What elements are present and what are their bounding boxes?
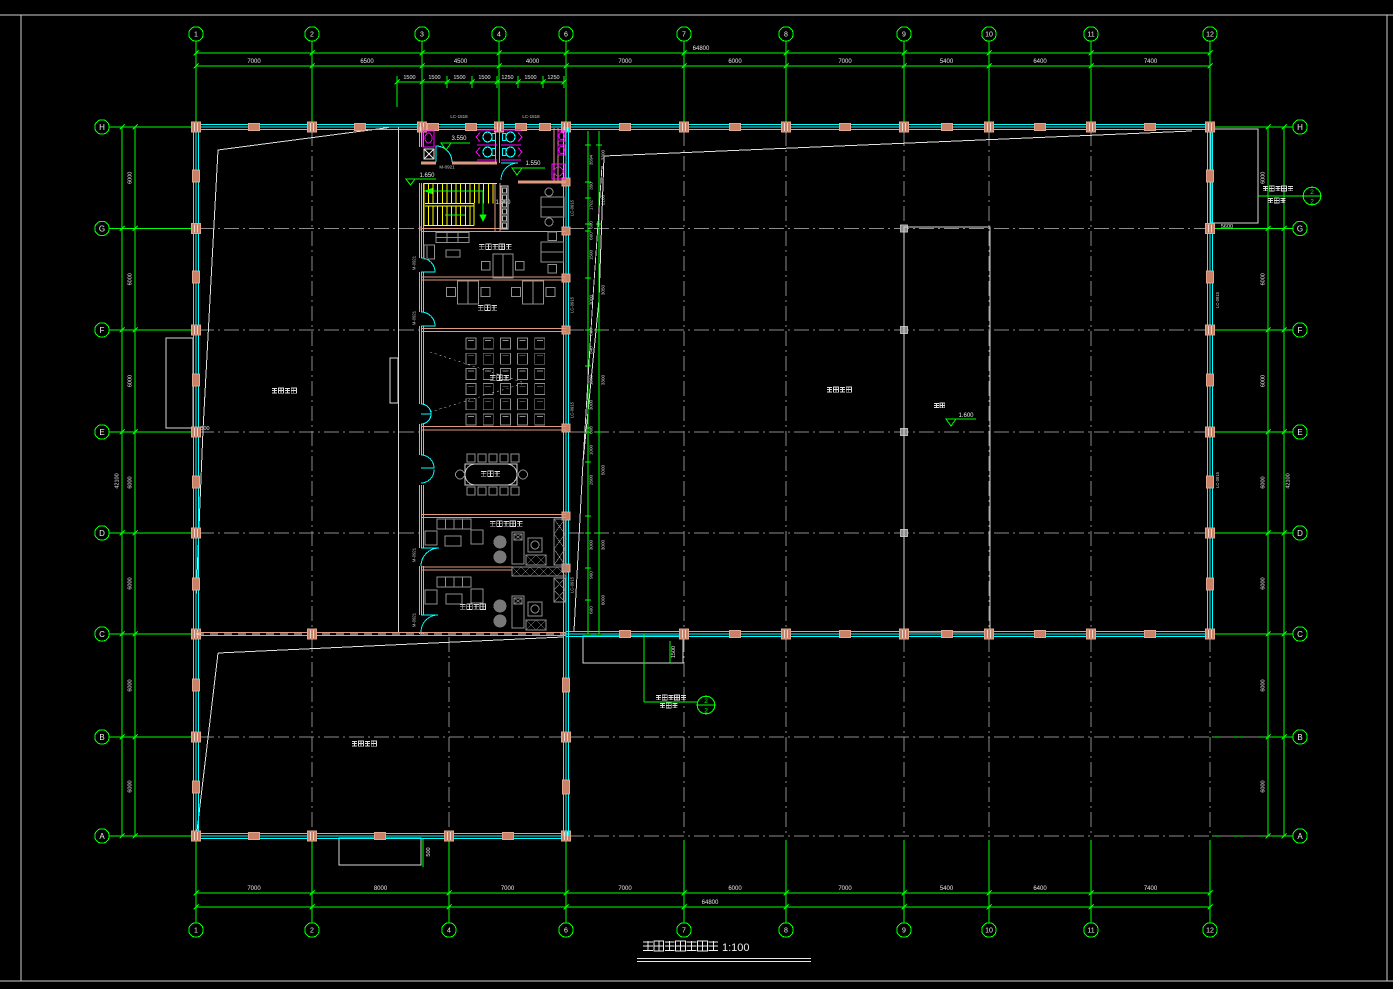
svg-text:7000: 7000 [247,59,261,65]
svg-text:6000: 6000 [128,577,134,589]
svg-text:500: 500 [200,426,209,432]
svg-text:4000: 4000 [526,59,540,65]
svg-text:M-0921: M-0921 [412,547,417,562]
svg-text:7400: 7400 [1144,59,1158,65]
svg-text:7000: 7000 [618,59,632,65]
svg-text:840: 840 [589,346,594,354]
svg-text:E: E [99,428,104,437]
svg-text:3000: 3000 [589,294,594,305]
svg-text:LC-1518: LC-1518 [450,114,468,119]
svg-text:10: 10 [985,928,993,935]
svg-text:H: H [1297,123,1303,132]
svg-text:6000: 6000 [1261,273,1267,285]
svg-text:7: 7 [682,928,686,935]
svg-text:6000: 6000 [1261,577,1267,589]
svg-text:1500: 1500 [428,75,440,81]
svg-text:500: 500 [426,847,432,856]
svg-text:6000: 6000 [128,375,134,387]
svg-text:4500: 4500 [454,59,468,65]
svg-text:A: A [1297,832,1303,841]
svg-text:42100: 42100 [1286,473,1292,488]
svg-text:M-0921: M-0921 [412,255,417,270]
svg-text:6400: 6400 [1033,886,1047,892]
svg-text:2: 2 [310,32,314,39]
svg-text:7000: 7000 [618,886,632,892]
svg-text:LC-0915: LC-0915 [570,296,575,313]
svg-text:LC-0915: LC-0915 [570,199,575,216]
svg-text:3300: 3300 [601,374,606,385]
svg-text:1702: 1702 [589,199,594,210]
svg-text:B: B [1297,733,1302,742]
svg-text:5000: 5000 [601,464,606,475]
svg-text:2600: 2600 [589,474,594,485]
svg-text:1500: 1500 [478,75,490,81]
svg-text:900: 900 [589,571,594,579]
svg-text:3000: 3000 [589,539,594,550]
svg-text:1.800: 1.800 [495,200,511,206]
svg-text:3.550: 3.550 [451,136,467,142]
svg-text:M-0921: M-0921 [412,612,417,627]
svg-text:1500: 1500 [589,249,594,260]
svg-text:7000: 7000 [247,886,261,892]
svg-text:600: 600 [589,426,594,434]
svg-text:6000: 6000 [128,273,134,285]
svg-text:1500: 1500 [589,374,594,385]
svg-text:6400: 6400 [1033,59,1047,65]
svg-text:1250: 1250 [547,75,559,81]
svg-text:7000: 7000 [501,886,515,892]
svg-text:64800: 64800 [693,46,710,52]
svg-text:600: 600 [589,328,594,336]
svg-text:2: 2 [310,928,314,935]
svg-text:6000: 6000 [728,886,742,892]
svg-text:600: 600 [589,606,594,614]
svg-text:B: B [99,733,104,742]
svg-text:10: 10 [985,32,993,39]
svg-text:F: F [100,326,105,335]
svg-text:8000: 8000 [374,886,388,892]
svg-text:1250: 1250 [501,75,513,81]
svg-text:A: A [99,832,105,841]
svg-text:2: 2 [1310,189,1314,196]
svg-text:D: D [99,529,105,538]
svg-text:7000: 7000 [838,59,852,65]
svg-text:3300: 3300 [601,149,606,160]
svg-text:1: 1 [194,928,198,935]
svg-text:LC-0915: LC-0915 [570,401,575,418]
svg-text:6000: 6000 [1261,172,1267,184]
svg-text:H: H [99,123,105,132]
svg-text:7: 7 [682,32,686,39]
svg-text:3000: 3000 [589,399,594,410]
svg-text:1.650: 1.650 [419,173,435,179]
svg-text:350: 350 [589,182,594,190]
svg-text:6000: 6000 [128,476,134,488]
svg-text:11: 11 [1087,928,1094,935]
svg-text:6000: 6000 [1261,476,1267,488]
svg-text:6000: 6000 [128,679,134,691]
svg-text:1000: 1000 [589,444,594,455]
svg-text:4: 4 [447,928,451,935]
svg-text:C: C [99,630,105,639]
svg-text:11: 11 [1087,32,1094,39]
svg-text:7400: 7400 [1144,886,1158,892]
svg-text:9: 9 [902,32,906,39]
svg-text:64800: 64800 [702,900,719,906]
svg-text:F: F [1298,326,1303,335]
svg-text:2: 2 [1310,199,1314,206]
svg-text:3000: 3000 [601,539,606,550]
svg-text:42100: 42100 [115,473,121,488]
svg-text:6000: 6000 [128,172,134,184]
svg-text:3050: 3050 [601,284,606,295]
svg-text:M-0921: M-0921 [439,165,455,170]
svg-text:M-0921: M-0921 [412,310,417,325]
svg-text:LC-0915: LC-0915 [1215,291,1220,308]
svg-text:6: 6 [564,32,568,39]
svg-text:3: 3 [420,32,424,39]
svg-text:1500: 1500 [524,75,536,81]
svg-text:C: C [1297,630,1303,639]
svg-text:600: 600 [589,221,594,229]
svg-text:2100: 2100 [601,194,606,205]
svg-text:600: 600 [589,232,594,240]
svg-text:2: 2 [704,698,708,705]
svg-text:LC-0915: LC-0915 [1215,471,1220,488]
svg-text:6000: 6000 [601,594,606,605]
svg-text:5400: 5400 [940,59,954,65]
svg-text:6500: 6500 [360,59,374,65]
svg-text:1: 1 [194,32,198,39]
svg-text:9: 9 [902,928,906,935]
svg-text:G: G [1297,224,1303,233]
svg-text:E: E [1297,428,1302,437]
svg-text:6000: 6000 [728,59,742,65]
svg-text:1500: 1500 [453,75,465,81]
svg-text:1500: 1500 [671,646,677,658]
svg-text:6: 6 [564,928,568,935]
svg-text:LC-0915: LC-0915 [570,576,575,593]
svg-text:LC-1518: LC-1518 [522,114,540,119]
svg-text:D: D [1297,529,1303,538]
svg-text:6000: 6000 [1261,679,1267,691]
svg-text:6000: 6000 [128,780,134,792]
svg-text:5600: 5600 [1221,224,1233,230]
svg-text:12: 12 [1206,32,1214,39]
svg-text:2: 2 [704,708,708,715]
svg-text:1.550: 1.550 [525,161,541,167]
svg-text:7000: 7000 [838,886,852,892]
svg-text:8: 8 [784,928,788,935]
svg-text:5400: 5400 [940,886,954,892]
svg-text:3594: 3594 [589,154,594,165]
svg-text:1.600: 1.600 [958,413,974,419]
svg-text:6000: 6000 [1261,780,1267,792]
svg-text:12: 12 [1206,928,1214,935]
svg-text:8: 8 [784,32,788,39]
svg-text:1500: 1500 [403,75,415,81]
svg-text:4: 4 [497,32,501,39]
svg-text:6000: 6000 [1261,375,1267,387]
svg-text:1:100: 1:100 [722,942,750,954]
svg-text:G: G [99,224,105,233]
